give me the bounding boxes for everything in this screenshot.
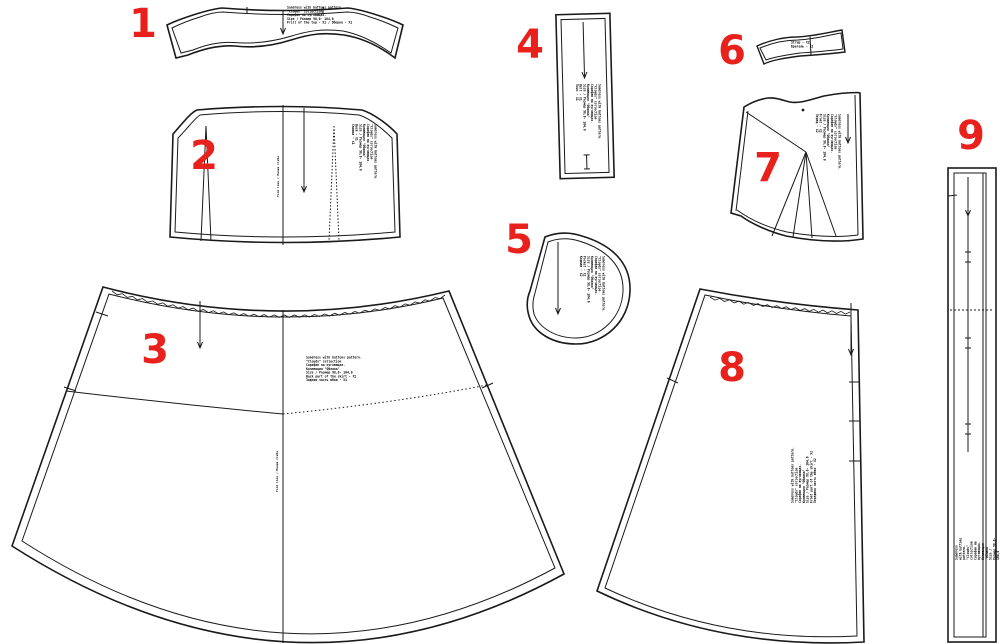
piece-9-outline [948, 168, 996, 642]
piece-8-outline [597, 289, 864, 643]
piece-1-outline [167, 7, 403, 58]
piece-4-info-text: Sundress with buttons pattern. "Clouds" … [575, 84, 601, 140]
piece-1-info-text: Sundress with buttons pattern. "Clouds" … [287, 6, 352, 25]
piece-6-number: 6 [718, 28, 746, 74]
piece-5-number: 5 [505, 217, 533, 263]
piece-9-number: 9 [957, 113, 985, 159]
piece-5-info-text: Sundress with buttons pattern. "Clouds" … [579, 256, 605, 312]
piece-7-outline [731, 93, 863, 242]
piece-3-fold-label: Fold line / Линия сгиба [276, 451, 279, 492]
piece-4-number: 4 [516, 22, 544, 68]
piece-2-fold-label: Fold line / Линия сгиба [277, 156, 280, 197]
piece-7-number: 7 [754, 145, 782, 191]
piece-3-number: 3 [141, 327, 169, 373]
piece-8-number: 8 [718, 345, 746, 391]
piece-9-info-text: Sundress with buttons pattern. "Clouds" … [955, 538, 1000, 561]
piece-8-info-text: Sundress with buttons pattern. "Clouds" … [791, 447, 817, 503]
piece-1-number: 1 [129, 1, 157, 47]
button-dot [802, 109, 805, 112]
piece-2-info-text: Sundress with buttons pattern. "Clouds" … [351, 124, 377, 180]
piece-2-number: 2 [190, 133, 218, 179]
pattern-sheet: 1 2 3 4 5 6 7 8 9 Sundress with buttons … [0, 0, 1000, 644]
piece-7-info-text: Sundress with buttons pattern. "Clouds" … [815, 114, 841, 170]
pattern-line-art [0, 0, 1000, 644]
piece-3-outline [12, 287, 564, 643]
piece-6-info-text: Strap - Х2 Бретель - Х2 [791, 41, 813, 49]
piece-3-info-text: Sundress with buttons pattern. "Clouds" … [306, 356, 362, 382]
